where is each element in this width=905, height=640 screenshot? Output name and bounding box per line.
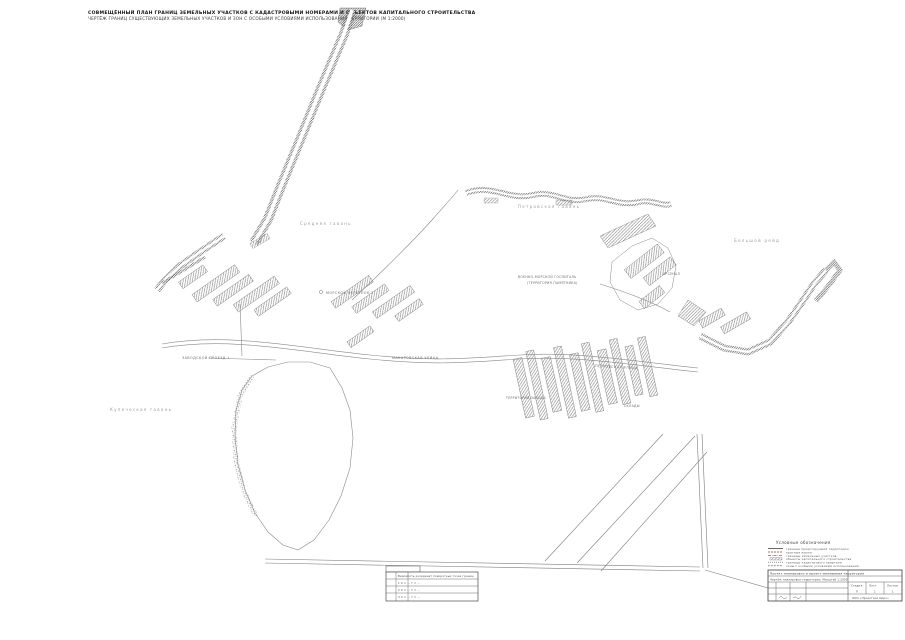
street-label-main: МАКАРОВСКАЯ УЛИЦА: [392, 356, 439, 360]
coords-table: Ведомость координат поворотных точек гра…: [386, 566, 478, 601]
north-pier: [254, 8, 366, 243]
pier-band: [254, 10, 352, 243]
building-cluster-southeast: [512, 327, 658, 427]
stamp-org-name: ООО «Проектное бюро»: [852, 596, 889, 600]
stamp-doc-name: Чертёж планировки территории. Масштаб 1:…: [770, 578, 848, 582]
stamp-sheet-label: Лист: [869, 584, 877, 588]
coords-table-row: 2 X = … Y = …: [398, 588, 420, 592]
area-label-district-1: ВОЕННО-МОРСКОЙ ГОСПИТАЛЬ: [518, 274, 577, 279]
stamp-stage-label: Стадия: [851, 584, 862, 588]
water-label-e-road: Большой рейд: [734, 238, 780, 243]
stamp-sheets-value: 1: [892, 590, 894, 594]
stamp-stage-value: П: [856, 590, 858, 594]
area-label-district-2: (ТЕРРИТОРИЯ ПАМЯТНИКА): [527, 281, 578, 285]
water-label-n-bay: Петровская гавань: [518, 204, 580, 209]
building-cluster-west: [178, 233, 291, 343]
coords-table-row: 3 X = … Y = …: [398, 595, 420, 599]
coords-table-row: 1 X = … Y = …: [398, 581, 420, 585]
area-label-block-b: СКЛАДЫ: [624, 404, 640, 408]
building-cluster-east: [699, 298, 751, 342]
stamp-sheet-value: 1: [874, 590, 876, 594]
legend-title: Условные обозначения: [776, 540, 831, 545]
legend: Условные обозначения граница проектируем…: [768, 540, 859, 568]
title-block: Проект планировки и проект межевания тер…: [768, 570, 902, 601]
area-label-block-a: ТЕРРИТОРИЯ ЗАВОДА: [505, 396, 546, 400]
harbor-basin: [235, 362, 353, 550]
star-fort: [600, 214, 706, 326]
water-label-nw-bay: Средняя гавань: [300, 221, 352, 226]
water-label-w-bay: Купеческая гавань: [110, 407, 172, 412]
street-label-lane: МОРСКОЙ ПЕРЕУЛОК 1: [326, 290, 374, 295]
stamp-sheets-label: Листов: [887, 584, 898, 588]
plan-sheet: СОВМЕЩЁННЫЙ ПЛАН ГРАНИЦ ЗЕМЕЛЬНЫХ УЧАСТК…: [0, 0, 905, 640]
building-cluster-center: [323, 259, 423, 352]
legend-item: зоны с особыми условиями использования: [786, 564, 859, 568]
lane-marker-icon: [319, 290, 322, 293]
legend-symbol-building: [770, 558, 782, 560]
stamp-project-name: Проект планировки и проект межевания тер…: [770, 572, 864, 576]
site-plan-map: Средняя гавань Петровская гавань Купечес…: [0, 0, 905, 640]
coords-table-title: Ведомость координат поворотных точек гра…: [398, 574, 474, 578]
area-label-fort: АРСЕНАЛ: [663, 272, 680, 276]
street-label-drive: ЗАВОДСКОЙ ПРОЕЗД 1: [182, 355, 230, 360]
east-breakwater: [700, 262, 840, 352]
